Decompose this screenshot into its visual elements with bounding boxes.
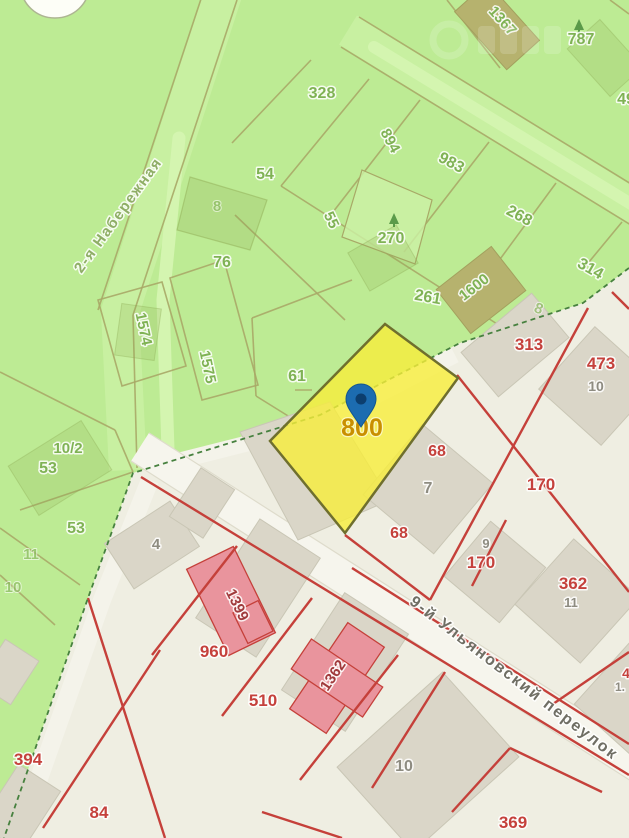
parcel-label: 54	[256, 166, 274, 183]
parcel-label: 270	[378, 230, 405, 247]
parcel-label: 9	[482, 536, 489, 551]
parcel-label: 394	[14, 750, 43, 769]
parcel-label: 960	[200, 642, 228, 661]
parcel-label: 170	[527, 475, 555, 494]
parcel-label: 170	[467, 553, 495, 572]
tree-icon	[393, 224, 395, 227]
parcel-label: 473	[587, 354, 615, 373]
parcel-label: 1.	[615, 680, 625, 694]
parcel-label: 68	[390, 525, 408, 542]
parcel-label: 49	[617, 91, 629, 108]
parcel-label: 4	[152, 536, 161, 553]
parcel-label: 53	[39, 460, 57, 477]
parcel-label: 4	[622, 665, 629, 681]
parcel-label: 84	[90, 803, 109, 822]
parcel-label: 10	[588, 378, 604, 394]
parcel-label: 10	[395, 758, 413, 775]
parcel-label: 510	[249, 691, 277, 710]
parcel-label: 7	[424, 480, 433, 497]
parcel-label: 11	[564, 595, 578, 610]
parcel-label: 787	[568, 31, 595, 48]
parcel-label: 68	[428, 443, 446, 460]
parcel-label: 53	[67, 520, 85, 537]
parcel-label: 328	[309, 85, 336, 102]
parcel-label: 362	[559, 574, 587, 593]
parcel-label: 11	[23, 546, 39, 563]
parcel-label: 369	[499, 813, 527, 832]
map-canvas[interactable]: 3281367787498949835526831427026116008854…	[0, 0, 629, 838]
cadastral-map-viewport[interactable]: 3281367787498949835526831427026116008854…	[0, 0, 629, 838]
parcel-label: 61	[288, 368, 306, 385]
parcel-label: 8	[213, 198, 221, 215]
parcel-label: 10/2	[53, 440, 82, 457]
parcel-label: 313	[515, 335, 543, 354]
parcel-label: 76	[213, 254, 231, 271]
parcel-label: 10	[5, 579, 22, 596]
